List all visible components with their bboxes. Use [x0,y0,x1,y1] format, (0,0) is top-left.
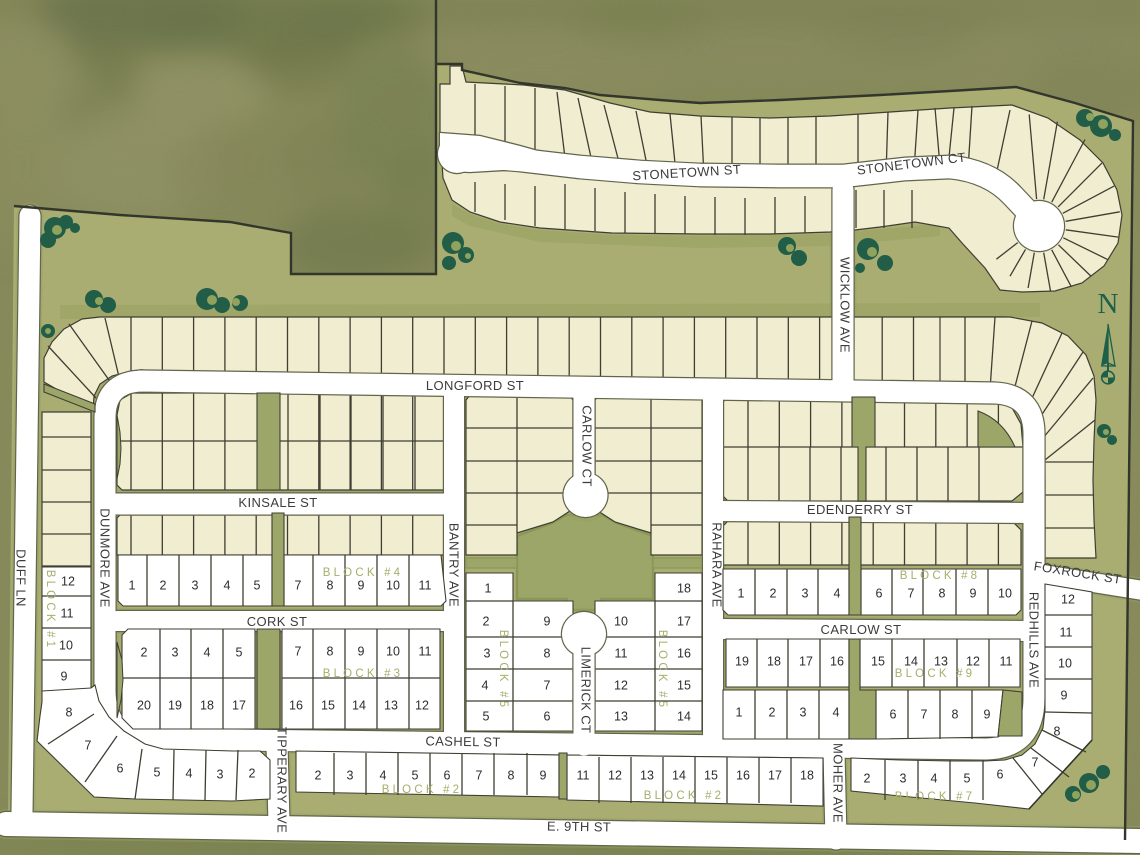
svg-text:10: 10 [1058,656,1072,670]
svg-text:CORK ST: CORK ST [247,614,308,629]
svg-text:8: 8 [952,707,959,721]
svg-text:3: 3 [347,768,354,782]
svg-text:8: 8 [939,586,946,600]
svg-text:17: 17 [768,768,782,782]
svg-text:2: 2 [769,705,776,719]
svg-text:16: 16 [830,654,844,668]
svg-text:9: 9 [358,644,365,658]
svg-text:6: 6 [117,761,124,775]
svg-text:14: 14 [352,698,366,712]
svg-text:6: 6 [890,707,897,721]
svg-text:BLOCK #1: BLOCK #1 [44,570,56,651]
svg-text:BLOCK #5: BLOCK #5 [656,630,668,711]
svg-text:11: 11 [1060,625,1073,639]
svg-text:REDHILLS AVE: REDHILLS AVE [1027,592,1042,688]
svg-text:14: 14 [672,768,686,782]
svg-text:BLOCK #8: BLOCK #8 [900,570,981,582]
svg-text:8: 8 [1054,724,1061,738]
svg-text:13: 13 [934,654,948,668]
svg-text:11: 11 [577,768,590,782]
svg-text:TIPPERARY AVE: TIPPERARY AVE [275,727,290,833]
svg-text:7: 7 [1032,755,1039,769]
svg-text:LIMERICK CT: LIMERICK CT [579,647,594,734]
svg-text:BANTRY AVE: BANTRY AVE [447,523,462,607]
svg-text:20: 20 [137,698,151,712]
svg-text:7: 7 [544,678,551,692]
svg-text:BLOCK #7: BLOCK #7 [895,791,976,803]
svg-text:9: 9 [544,614,551,628]
svg-text:4: 4 [834,586,841,600]
svg-text:8: 8 [66,705,73,719]
svg-text:15: 15 [321,698,335,712]
svg-text:DUFF LN: DUFF LN [14,549,29,607]
svg-text:BLOCK #2: BLOCK #2 [382,784,463,796]
svg-text:13: 13 [614,709,628,723]
svg-text:16: 16 [289,698,303,712]
svg-text:CASHEL ST: CASHEL ST [425,733,501,749]
svg-text:9: 9 [1061,688,1068,702]
svg-text:1: 1 [129,578,136,592]
svg-text:11: 11 [419,644,432,658]
svg-text:WICKLOW AVE: WICKLOW AVE [838,257,853,353]
svg-text:9: 9 [358,578,365,592]
svg-text:3: 3 [172,645,179,659]
svg-text:15: 15 [704,768,718,782]
svg-text:13: 13 [640,768,654,782]
svg-text:19: 19 [168,698,182,712]
svg-text:17: 17 [677,614,691,628]
svg-text:15: 15 [871,654,885,668]
svg-text:BLOCK #9: BLOCK #9 [895,668,976,680]
svg-text:1: 1 [485,581,492,595]
svg-text:12: 12 [61,574,75,588]
svg-text:18: 18 [200,698,214,712]
svg-text:6: 6 [997,767,1004,781]
svg-text:CARLOW ST: CARLOW ST [821,622,902,637]
svg-text:16: 16 [677,646,691,660]
svg-text:9: 9 [984,707,991,721]
svg-text:6: 6 [544,709,551,723]
svg-text:N: N [1098,288,1119,320]
svg-text:4: 4 [186,766,193,780]
svg-text:5: 5 [236,645,243,659]
svg-text:11: 11 [61,606,74,620]
svg-text:11: 11 [615,646,628,660]
svg-text:8: 8 [327,578,334,592]
svg-text:11: 11 [1000,654,1013,668]
svg-text:4: 4 [931,771,938,785]
svg-text:9: 9 [970,586,977,600]
svg-text:14: 14 [677,709,691,723]
svg-text:13: 13 [384,698,398,712]
svg-text:2: 2 [249,766,256,780]
svg-text:3: 3 [802,586,809,600]
svg-text:3: 3 [484,646,491,660]
svg-text:7: 7 [295,644,302,658]
svg-text:18: 18 [767,654,781,668]
svg-text:10: 10 [998,586,1012,600]
svg-text:8: 8 [544,646,551,660]
svg-text:E. 9TH ST: E. 9TH ST [547,818,612,834]
svg-text:19: 19 [735,654,749,668]
svg-text:1: 1 [736,705,743,719]
svg-text:RAHARA AVE: RAHARA AVE [710,522,725,607]
svg-text:12: 12 [1061,592,1075,606]
svg-text:LONGFORD ST: LONGFORD ST [426,378,524,393]
svg-text:5: 5 [154,765,161,779]
svg-text:BLOCK #4: BLOCK #4 [323,567,404,579]
svg-text:5: 5 [254,578,261,592]
svg-text:2: 2 [864,771,871,785]
svg-text:BLOCK #3: BLOCK #3 [323,668,404,680]
svg-text:18: 18 [677,581,691,595]
svg-text:12: 12 [614,678,628,692]
svg-text:7: 7 [921,707,928,721]
svg-text:7: 7 [85,738,92,752]
svg-text:3: 3 [800,705,807,719]
svg-text:KINSALE ST: KINSALE ST [238,495,317,510]
svg-text:12: 12 [966,654,980,668]
svg-text:2: 2 [770,586,777,600]
svg-text:2: 2 [160,578,167,592]
svg-text:3: 3 [192,578,199,592]
svg-text:14: 14 [904,654,918,668]
svg-text:9: 9 [61,669,68,683]
svg-text:EDENDERRY ST: EDENDERRY ST [807,502,913,517]
svg-text:MOHER AVE: MOHER AVE [831,743,846,823]
svg-text:4: 4 [833,705,840,719]
svg-text:15: 15 [677,678,691,692]
svg-text:8: 8 [508,768,515,782]
svg-text:4: 4 [204,645,211,659]
svg-text:16: 16 [736,768,750,782]
svg-text:BLOCK #5: BLOCK #5 [497,630,509,711]
svg-text:6: 6 [444,768,451,782]
svg-text:18: 18 [800,768,814,782]
svg-text:10: 10 [614,614,628,628]
svg-text:12: 12 [608,768,622,782]
svg-text:4: 4 [482,678,489,692]
svg-text:5: 5 [964,771,971,785]
svg-text:9: 9 [540,768,547,782]
svg-text:17: 17 [799,654,813,668]
svg-text:3: 3 [900,771,907,785]
svg-text:4: 4 [380,768,387,782]
svg-text:DUNMORE AVE: DUNMORE AVE [98,508,113,608]
svg-text:6: 6 [876,586,883,600]
svg-text:2: 2 [483,614,490,628]
svg-text:2: 2 [141,645,148,659]
svg-text:BLOCK #2: BLOCK #2 [644,790,725,802]
svg-text:4: 4 [224,578,231,592]
svg-text:10: 10 [59,638,73,652]
svg-text:7: 7 [908,586,915,600]
svg-text:1: 1 [738,586,745,600]
svg-text:CARLOW CT: CARLOW CT [580,405,595,487]
svg-text:5: 5 [412,768,419,782]
svg-text:7: 7 [295,578,302,592]
svg-text:17: 17 [232,698,246,712]
svg-text:12: 12 [415,698,429,712]
svg-text:10: 10 [386,644,400,658]
svg-text:2: 2 [315,768,322,782]
svg-text:3: 3 [217,767,224,781]
svg-text:7: 7 [476,768,483,782]
svg-text:8: 8 [327,644,334,658]
svg-text:11: 11 [419,578,432,592]
svg-text:10: 10 [386,578,400,592]
svg-text:5: 5 [483,709,490,723]
